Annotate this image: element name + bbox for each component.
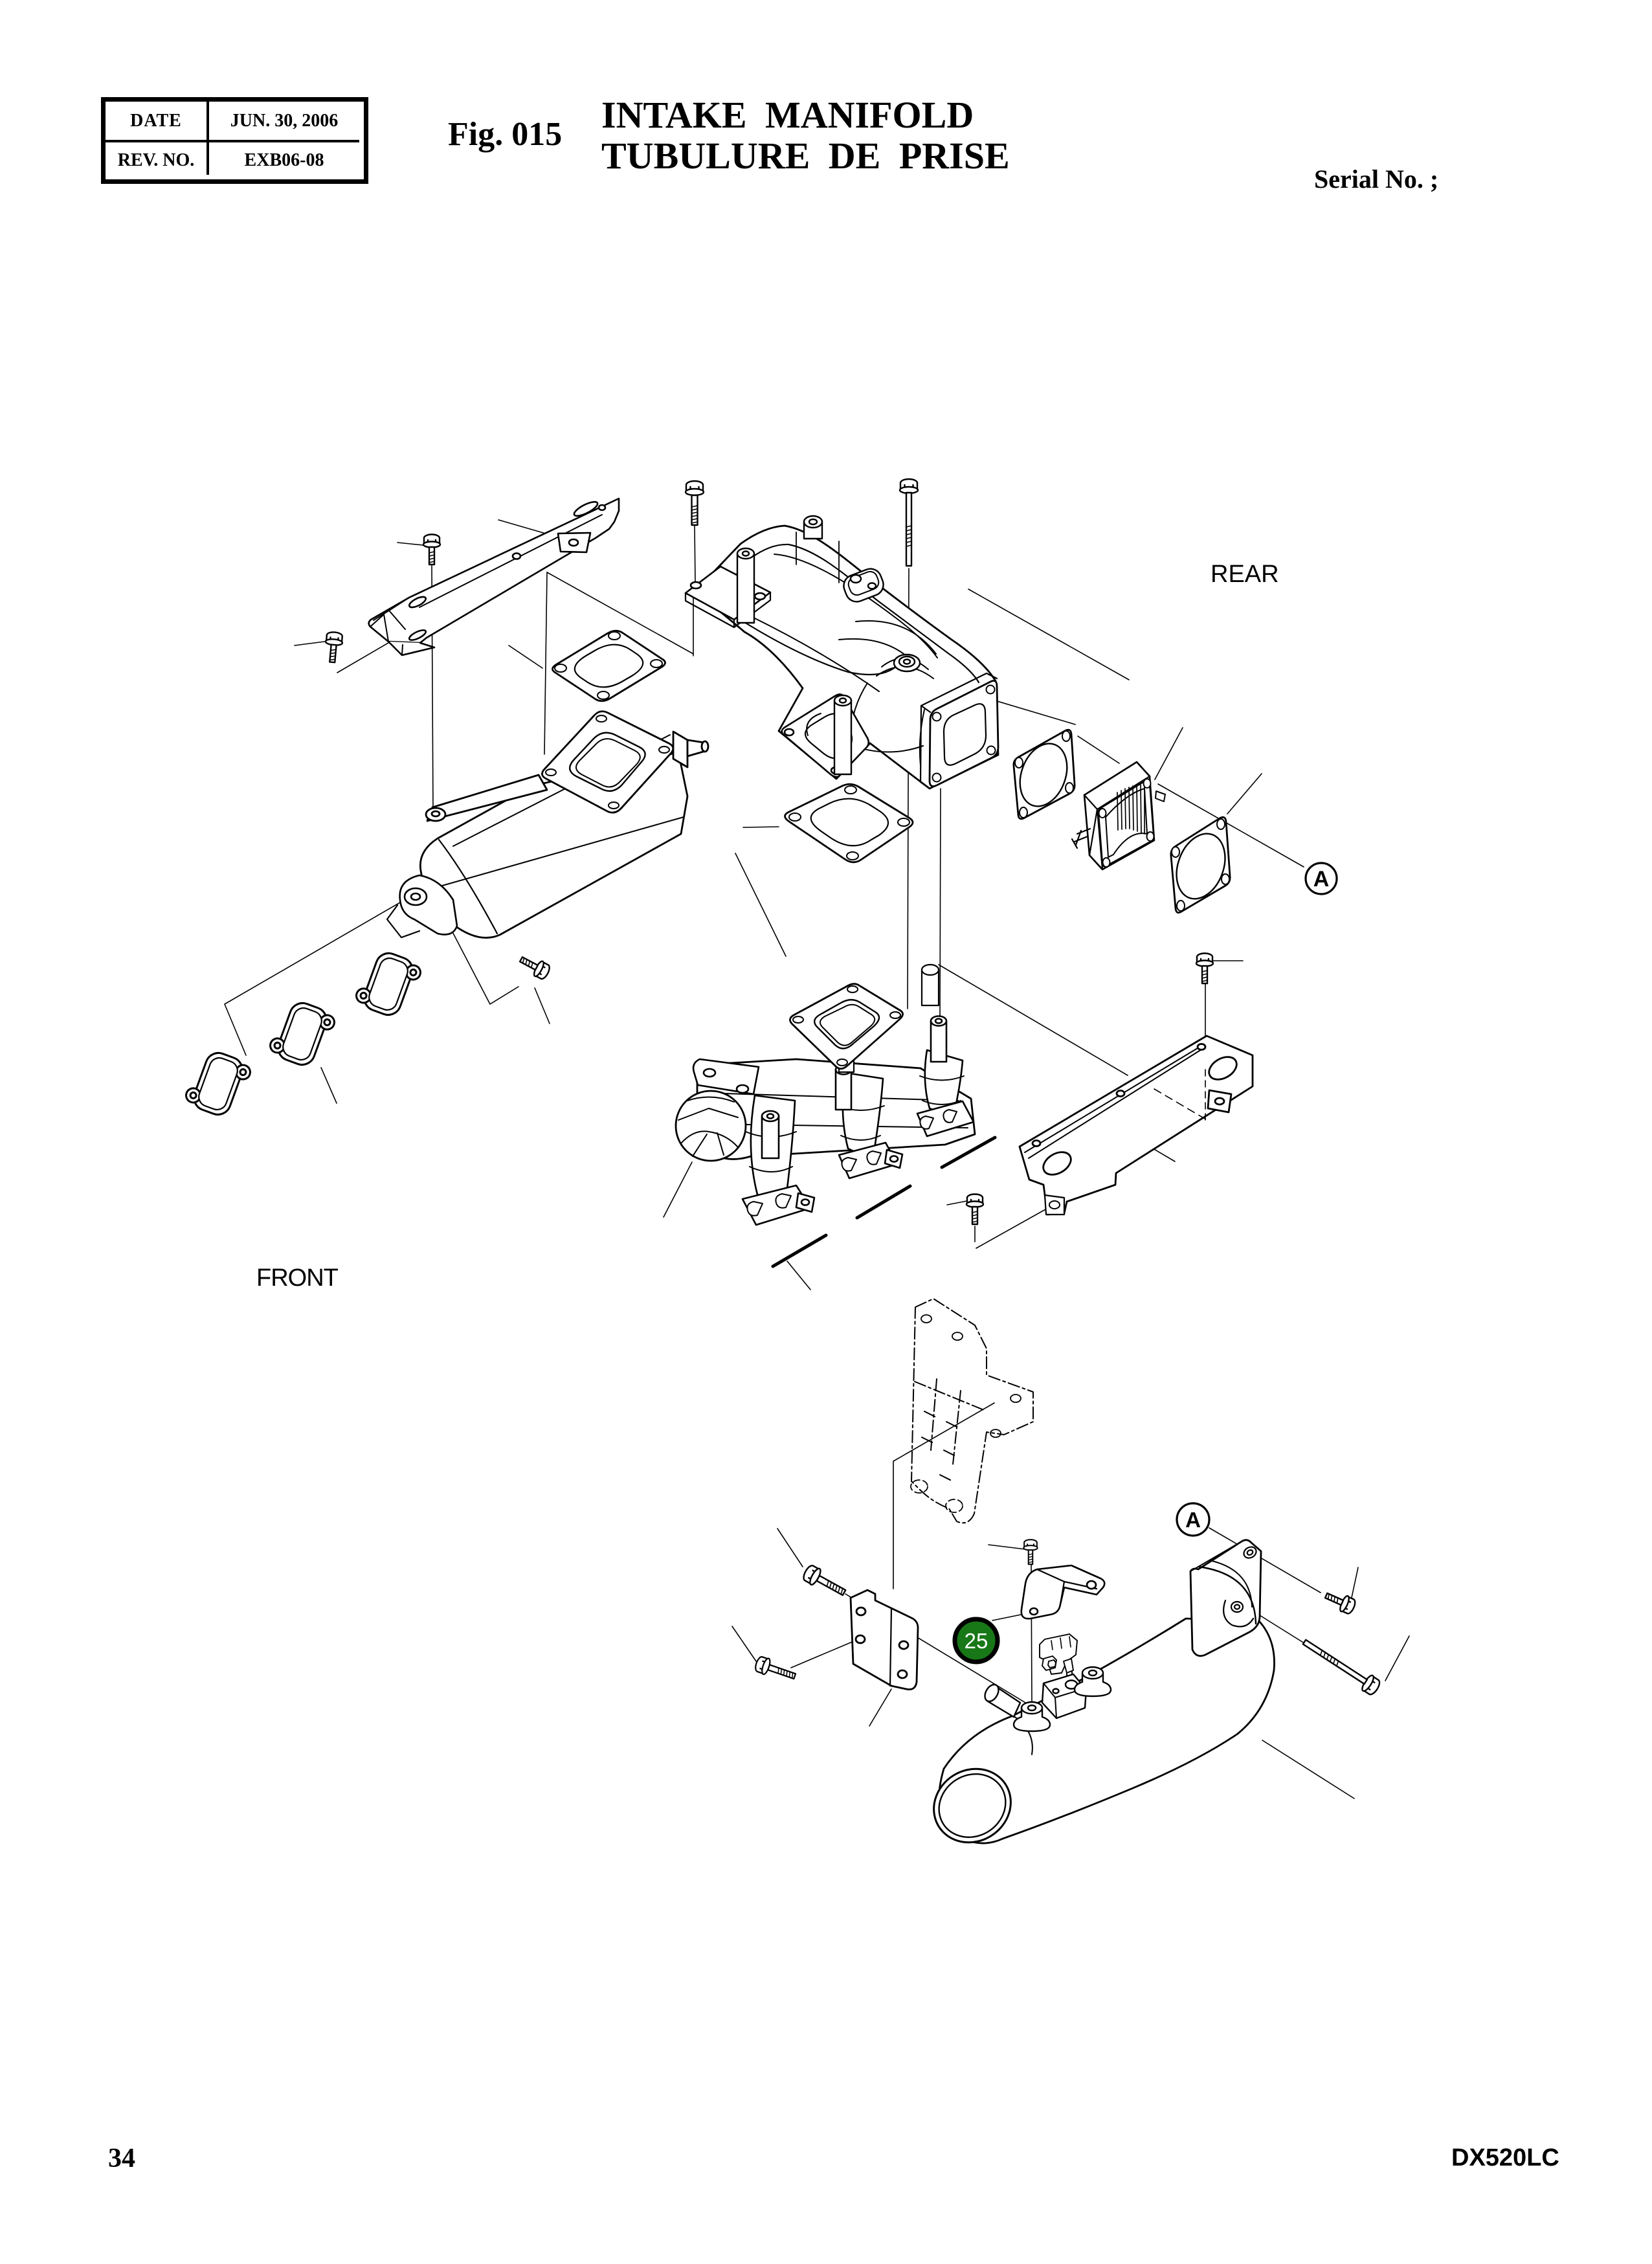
svg-text:A: A <box>1313 867 1330 891</box>
svg-text:25: 25 <box>965 1629 988 1653</box>
svg-text:A: A <box>1185 1508 1201 1532</box>
